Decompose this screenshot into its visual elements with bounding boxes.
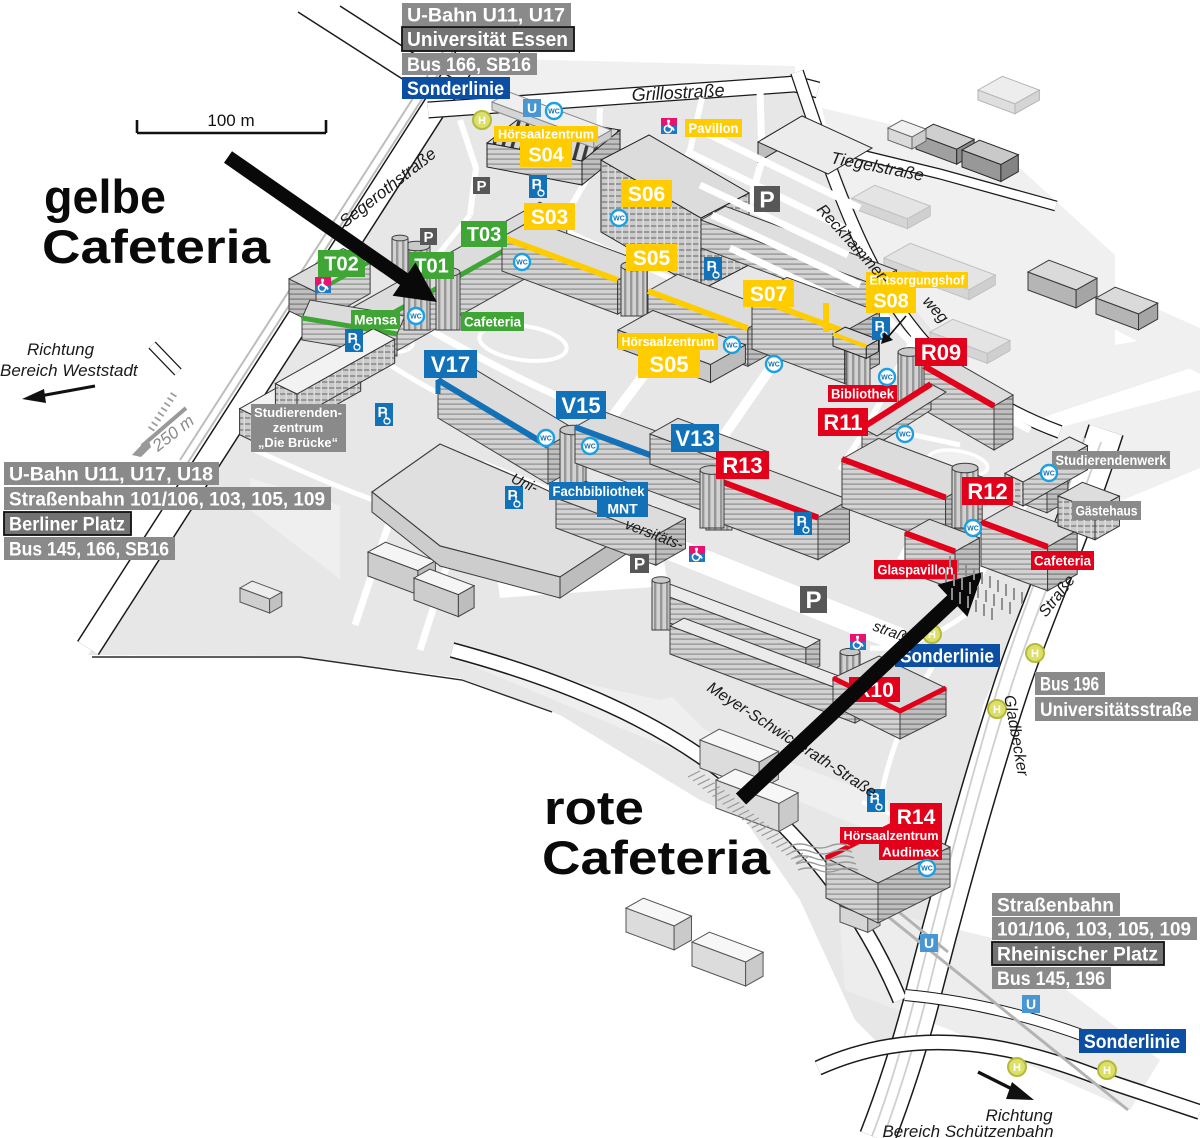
svg-text:R11: R11 (823, 410, 862, 435)
svg-text:P: P (634, 555, 645, 574)
svg-text:Bus 166, SB16: Bus 166, SB16 (407, 55, 531, 76)
svg-text:Hörsaalzentrum: Hörsaalzentrum (844, 828, 939, 843)
svg-text:zentrum: zentrum (273, 420, 324, 435)
svg-text:Richtung: Richtung (27, 340, 95, 359)
svg-text:R12: R12 (967, 479, 1007, 504)
svg-text:R13: R13 (722, 453, 762, 478)
svg-text:Glaspavillon: Glaspavillon (878, 562, 954, 578)
svg-text:V15: V15 (561, 393, 600, 418)
svg-text:WC: WC (967, 526, 979, 533)
svg-text:WC: WC (881, 375, 893, 382)
svg-text:WC: WC (899, 432, 911, 439)
svg-text:Berliner Platz: Berliner Platz (9, 514, 125, 535)
svg-text:T02: T02 (324, 254, 358, 276)
svg-text:WC: WC (584, 444, 596, 451)
svg-text:Universitätsstraße: Universitätsstraße (1040, 700, 1192, 721)
svg-text:S04: S04 (528, 145, 564, 167)
svg-text:H: H (478, 115, 486, 127)
svg-text:S05: S05 (649, 352, 688, 377)
svg-text:U: U (924, 935, 934, 951)
svg-text:S06: S06 (628, 183, 665, 206)
svg-text:Straßenbahn: Straßenbahn (997, 895, 1114, 916)
svg-text:Bus 145, 196: Bus 145, 196 (997, 969, 1105, 990)
svg-text:H: H (1103, 1065, 1111, 1077)
svg-text:Bibliothek: Bibliothek (831, 386, 894, 402)
svg-text:U: U (527, 100, 537, 116)
svg-text:S03: S03 (531, 206, 568, 229)
svg-text:P: P (759, 186, 774, 212)
svg-text:WC: WC (410, 314, 422, 321)
svg-text:Fachbibliothek: Fachbibliothek (553, 483, 645, 499)
svg-text:R09: R09 (921, 340, 961, 365)
svg-text:P: P (423, 229, 433, 246)
svg-text:P: P (476, 178, 486, 195)
svg-text:WC: WC (921, 866, 933, 873)
svg-text:Rheinischer Platz: Rheinischer Platz (997, 944, 1158, 965)
svg-text:Cafeteria: Cafeteria (42, 220, 271, 273)
svg-text:Hörsaalzentrum: Hörsaalzentrum (622, 334, 715, 349)
svg-text:S05: S05 (633, 247, 671, 270)
svg-text:Pavillon: Pavillon (689, 120, 739, 136)
svg-text:S08: S08 (873, 291, 909, 313)
svg-text:WC: WC (540, 436, 552, 443)
svg-text:100 m: 100 m (207, 111, 254, 130)
svg-text:U-Bahn U11, U17, U18: U-Bahn U11, U17, U18 (9, 464, 213, 485)
svg-text:„Die Brücke“: „Die Brücke“ (258, 435, 338, 450)
svg-text:R14: R14 (897, 806, 936, 829)
svg-text:gelbe: gelbe (44, 170, 166, 223)
svg-text:Bus 196: Bus 196 (1040, 674, 1099, 695)
svg-text:WC: WC (726, 343, 738, 350)
svg-text:Audimax: Audimax (882, 845, 940, 860)
svg-text:WC: WC (516, 260, 528, 267)
svg-text:Sonderlinie: Sonderlinie (1084, 1032, 1180, 1053)
svg-text:V17: V17 (431, 352, 470, 377)
svg-text:U: U (1026, 996, 1036, 1012)
svg-text:H: H (1013, 1062, 1021, 1074)
svg-text:Cafeteria: Cafeteria (542, 831, 771, 884)
svg-text:Bereich Weststadt: Bereich Weststadt (0, 361, 139, 380)
svg-text:H: H (1031, 648, 1039, 660)
svg-text:rote: rote (544, 781, 644, 834)
svg-text:WC: WC (548, 109, 560, 116)
svg-text:WC: WC (613, 216, 625, 223)
svg-text:Sonderlinie: Sonderlinie (900, 646, 994, 667)
svg-text:P: P (805, 587, 821, 614)
svg-text:U-Bahn U11, U17: U-Bahn U11, U17 (407, 5, 565, 26)
svg-text:101/106, 103, 105, 109: 101/106, 103, 105, 109 (997, 919, 1191, 940)
svg-text:Cafeteria: Cafeteria (1034, 553, 1091, 569)
svg-text:T03: T03 (467, 224, 501, 246)
svg-text:Straßenbahn 101/106, 103, 105,: Straßenbahn 101/106, 103, 105, 109 (9, 489, 325, 510)
svg-text:Sonderlinie: Sonderlinie (407, 79, 504, 100)
svg-text:Gästehaus: Gästehaus (1076, 503, 1138, 519)
svg-text:Studierenden-: Studierenden- (254, 405, 342, 420)
svg-text:Mensa: Mensa (354, 312, 397, 328)
svg-text:Studierendenwerk: Studierendenwerk (1056, 452, 1167, 468)
svg-text:Universität Essen: Universität Essen (407, 29, 568, 51)
svg-text:H: H (993, 704, 1001, 716)
svg-text:WC: WC (768, 362, 780, 369)
svg-text:Bereich Schützenbahn: Bereich Schützenbahn (882, 1122, 1053, 1138)
svg-text:V13: V13 (675, 426, 714, 451)
svg-text:Cafeteria: Cafeteria (464, 314, 521, 330)
svg-text:MNT: MNT (607, 501, 638, 517)
svg-text:S07: S07 (750, 283, 787, 306)
svg-text:Bus 145, 166, SB16: Bus 145, 166, SB16 (9, 539, 169, 560)
svg-text:WC: WC (1043, 471, 1055, 478)
svg-text:Hörsaalzentrum: Hörsaalzentrum (498, 127, 594, 142)
